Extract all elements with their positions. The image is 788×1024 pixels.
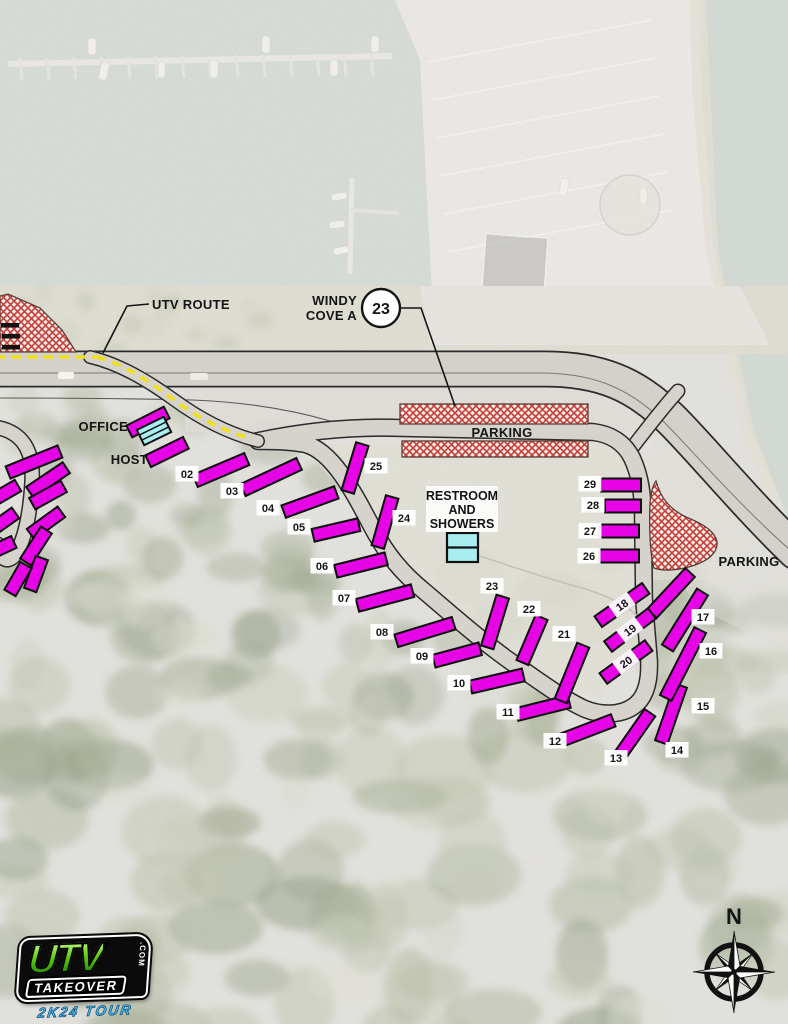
site-label-09: 09 xyxy=(416,651,428,663)
site-bar-28[interactable] xyxy=(605,500,641,513)
site-label-05: 05 xyxy=(293,522,305,534)
logo-takeover-text: TAKEOVER xyxy=(25,975,128,998)
parking-strip-lower[interactable] xyxy=(402,441,588,457)
campground-map: 0203040506070809101112131415161718192021… xyxy=(0,0,788,1024)
site-label-02: 02 xyxy=(181,469,193,481)
cove-name-line1: WINDY xyxy=(312,293,357,308)
site-label-10: 10 xyxy=(453,678,465,690)
host-label: HOST xyxy=(111,452,148,467)
site-label-29: 29 xyxy=(584,479,596,491)
restroom-label-1: RESTROOM xyxy=(426,489,498,503)
site-label-28: 28 xyxy=(587,500,599,512)
restroom-label-2: AND xyxy=(448,503,475,517)
site-label-23: 23 xyxy=(486,581,498,593)
north-label: N xyxy=(726,904,742,929)
site-label-25: 25 xyxy=(370,461,382,473)
site-label-03: 03 xyxy=(226,486,238,498)
site-label-21: 21 xyxy=(558,629,570,641)
parking-right-label: PARKING xyxy=(718,554,779,569)
site-label-27: 27 xyxy=(584,526,596,538)
logo-plaque: UTV .COM TAKEOVER xyxy=(15,934,151,1003)
site-label-17: 17 xyxy=(697,612,709,624)
adjacent-sites xyxy=(1,323,20,350)
site-bar-26[interactable] xyxy=(599,550,639,563)
site-label-11: 11 xyxy=(502,707,514,719)
site-label-06: 06 xyxy=(316,561,328,573)
restroom-label-3: SHOWERS xyxy=(430,517,495,531)
car xyxy=(190,373,208,380)
site-label-08: 08 xyxy=(376,627,388,639)
cove-name-line2: COVE A xyxy=(306,308,357,323)
map-svg: 0203040506070809101112131415161718192021… xyxy=(0,0,788,1024)
utv-takeover-logo: UTV .COM TAKEOVER 2K24 TOUR xyxy=(17,934,152,1022)
adjacent-site-bar xyxy=(1,323,19,328)
site-label-04: 04 xyxy=(262,503,275,515)
office-label: OFFICE xyxy=(79,419,128,434)
restroom-building[interactable] xyxy=(447,533,478,562)
adjacent-site-bar xyxy=(2,345,20,350)
car xyxy=(58,372,74,379)
logo-com-text: .COM xyxy=(137,942,148,967)
site-label-15: 15 xyxy=(697,701,709,713)
utv-route-label: UTV ROUTE xyxy=(152,297,230,312)
site-label-12: 12 xyxy=(549,736,561,748)
site-label-14: 14 xyxy=(671,745,684,757)
parking-top-label: PARKING xyxy=(471,425,532,440)
site-bar-29[interactable] xyxy=(601,479,641,492)
site-bar-27[interactable] xyxy=(599,525,639,538)
site-label-16: 16 xyxy=(705,646,717,658)
site-label-26: 26 xyxy=(583,551,595,563)
cove-number: 23 xyxy=(372,301,390,318)
parking-strip-upper[interactable] xyxy=(400,404,588,424)
site-label-13: 13 xyxy=(610,753,622,765)
site-label-07: 07 xyxy=(338,593,350,605)
site-label-24: 24 xyxy=(398,513,411,525)
logo-brand-text: UTV xyxy=(27,937,104,980)
site-label-22: 22 xyxy=(523,604,535,616)
adjacent-site-bar xyxy=(2,334,20,339)
